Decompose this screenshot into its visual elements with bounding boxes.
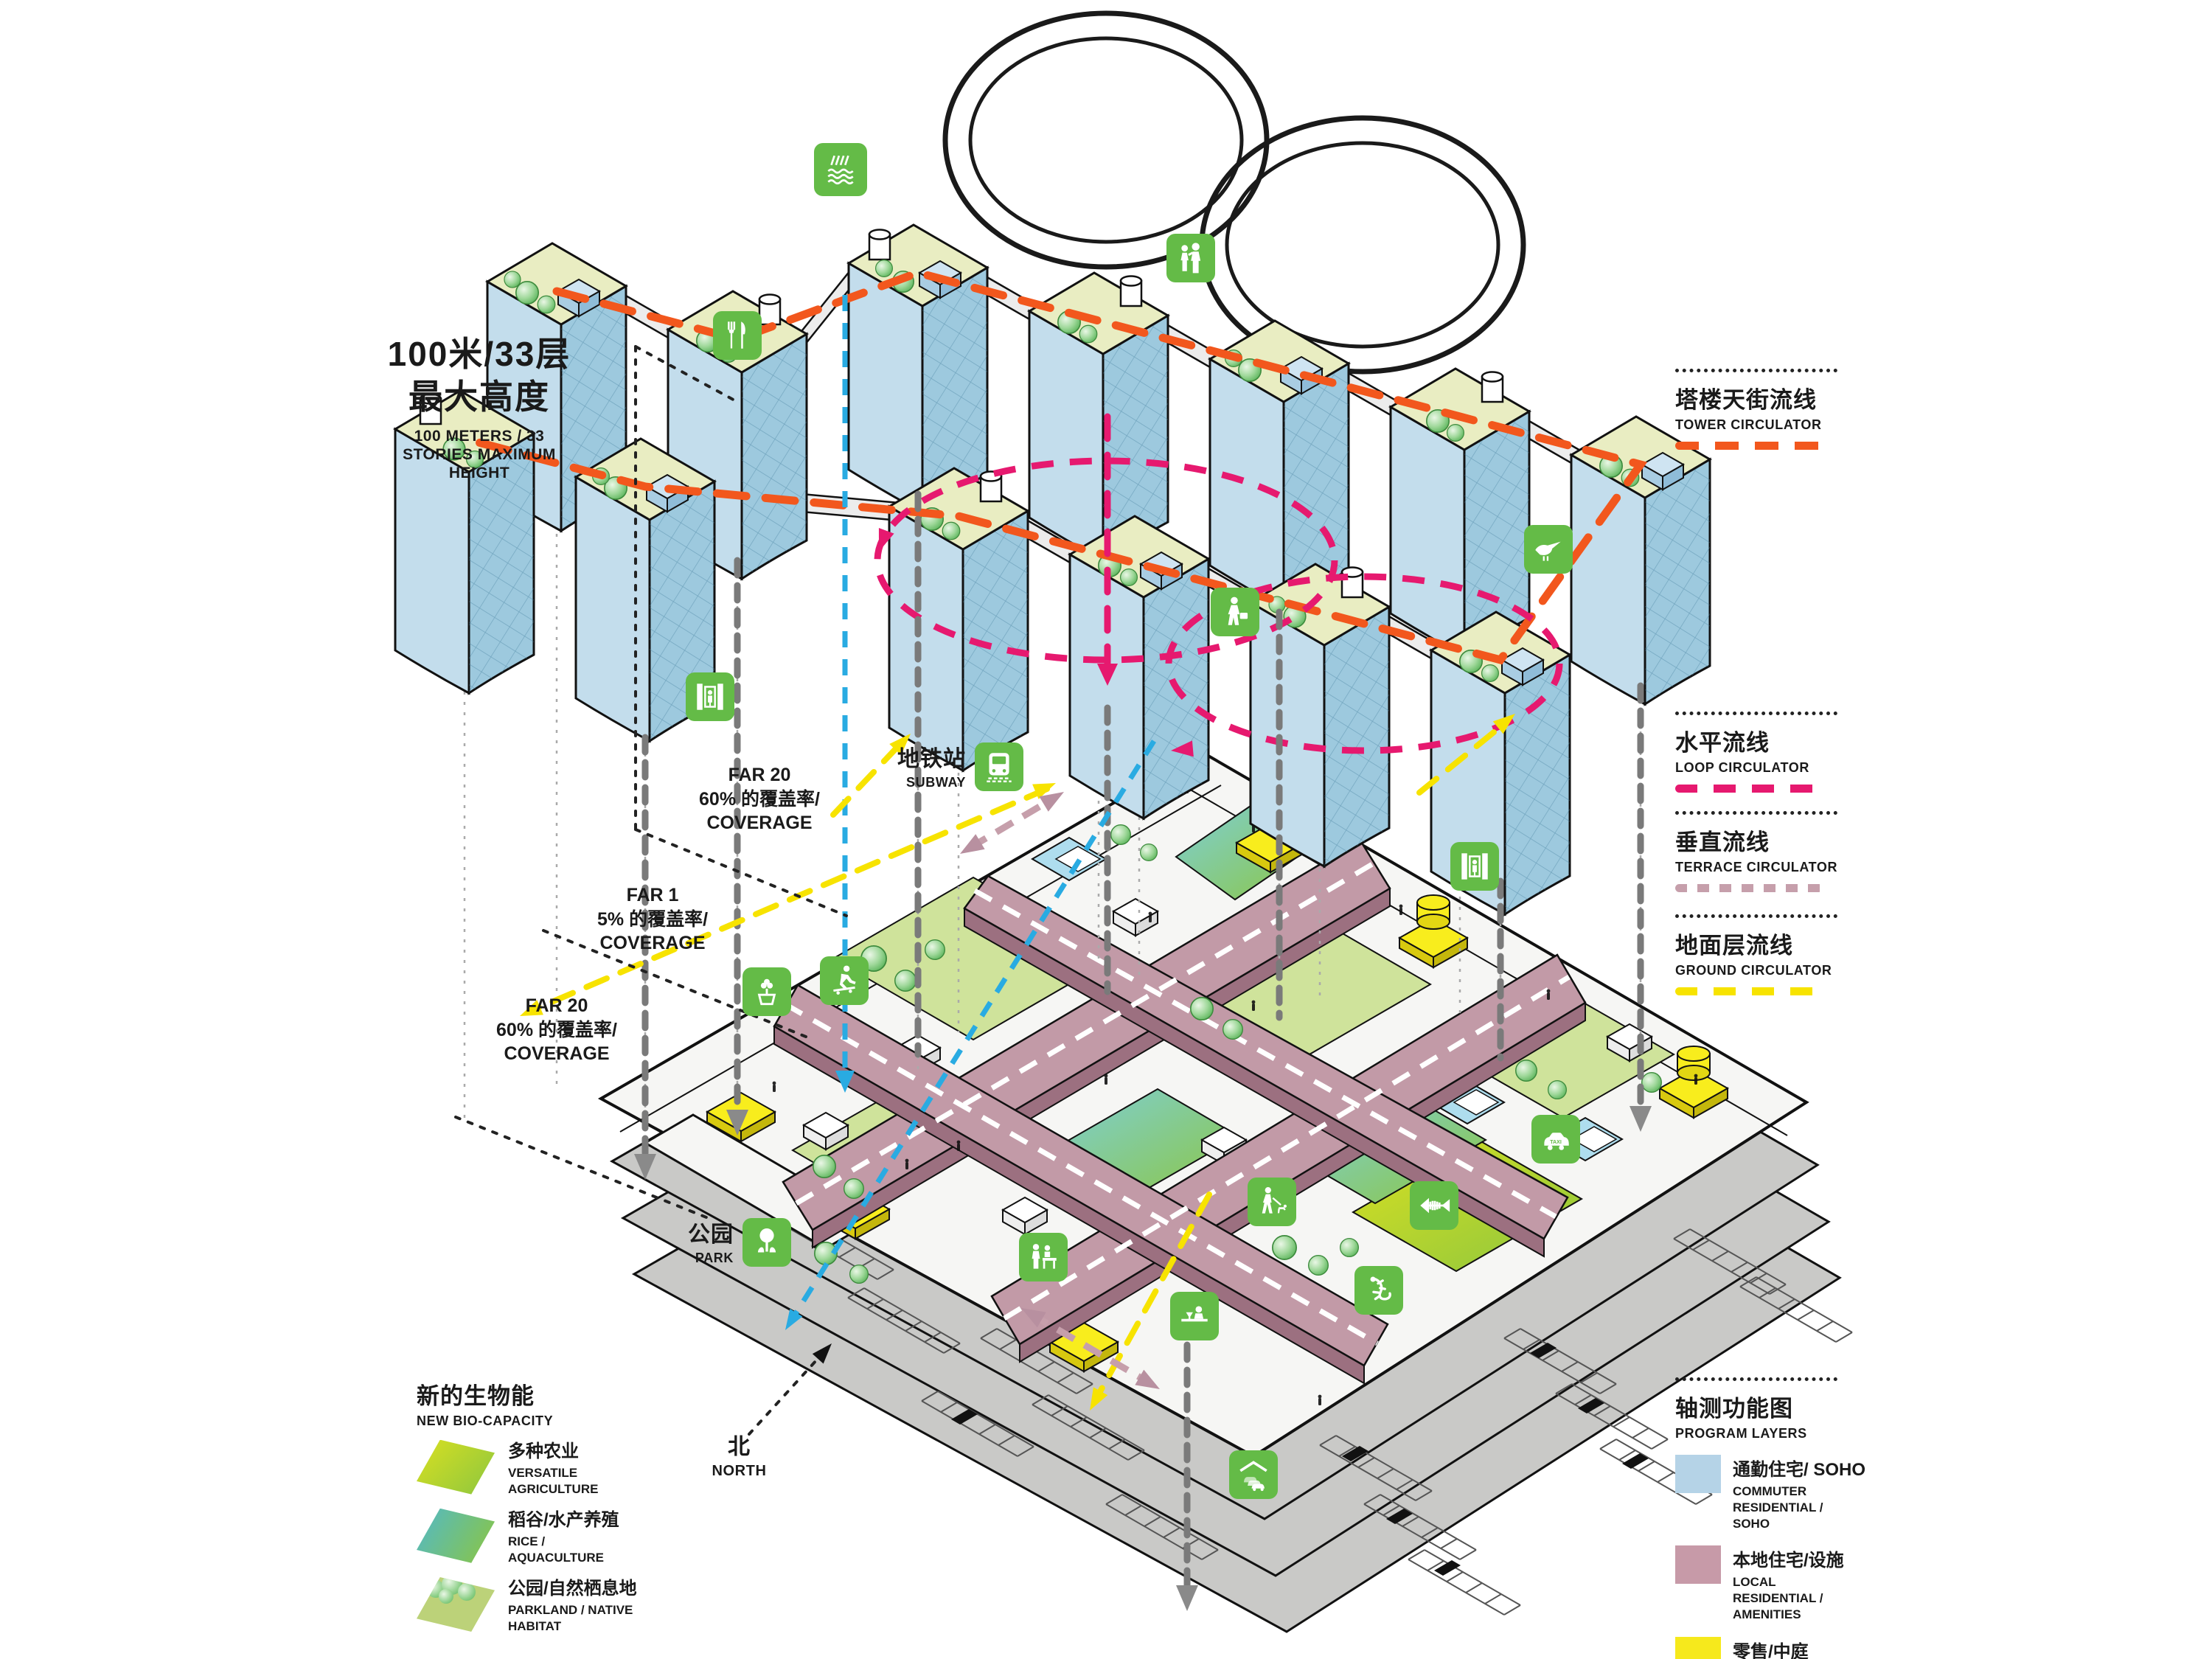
legend-terrace-circulator: 垂直流线 TERRACE CIRCULATOR xyxy=(1675,811,1955,892)
far-note-mid: FAR 1 5% 的覆盖率/ COVERAGE xyxy=(557,883,748,956)
agriculture-swatch xyxy=(417,1440,495,1495)
park-icon xyxy=(742,1218,791,1267)
legend-leader-dots xyxy=(1675,1377,1837,1381)
dog-walking-icon xyxy=(1248,1178,1296,1226)
skateboarding-icon xyxy=(820,956,869,1005)
legend-loop-circulator: 水平流线 LOOP CIRCULATOR xyxy=(1675,712,1955,793)
bird-icon xyxy=(1524,525,1573,574)
subway-icon xyxy=(975,742,1023,791)
elevator-icon xyxy=(686,672,734,721)
subway-label: 地铁站 SUBWAY xyxy=(804,747,966,790)
far-note-bottom: FAR 20 60% 的覆盖率/ COVERAGE xyxy=(461,994,653,1066)
legend-tower-circulator: 塔楼天街流线 TOWER CIRCULATOR xyxy=(1675,369,1955,450)
family-icon xyxy=(1166,234,1215,282)
program-item-local: 本地住宅/设施 LOCAL RESIDENTIAL / AMENITIES xyxy=(1675,1545,1955,1623)
legend-leader-dots xyxy=(1675,712,1837,715)
loop-circulator-swatch xyxy=(1675,785,1823,793)
elevator-icon xyxy=(1450,842,1499,891)
retail-swatch xyxy=(1675,1637,1721,1659)
bio-item-agriculture: 多种农业 VERSATILE AGRICULTURE xyxy=(417,1436,726,1498)
lizard-habitat-icon xyxy=(1354,1266,1403,1315)
legend-leader-dots xyxy=(1675,811,1837,815)
max-height-cn-line2: 最大高度 xyxy=(369,376,590,419)
reception-icon xyxy=(1019,1233,1068,1281)
legend-bio-capacity: 新的生物能 NEW BIO-CAPACITY 多种农业 VERSATILE AG… xyxy=(417,1377,726,1635)
axonometric-masterplan-diagram: 100米/33层 最大高度 100 METERS / 33 STORIES MA… xyxy=(0,0,2212,1659)
legend-ground-circulator: 地面层流线 GROUND CIRCULATOR xyxy=(1675,914,1955,995)
max-height-cn-line1: 100米/33层 xyxy=(369,333,590,376)
terrace-circulator-swatch xyxy=(1675,884,1823,892)
irrigation-icon xyxy=(814,143,867,196)
tower-circulator-swatch xyxy=(1675,442,1823,450)
program-item-commuter: 通勤住宅/ SOHO COMMUTER RESIDENTIAL / SOHO xyxy=(1675,1455,1955,1532)
park-label: 公园 PARK xyxy=(649,1222,734,1266)
ground-circulator-swatch xyxy=(1675,987,1823,995)
fish-habitat-icon xyxy=(1410,1181,1458,1230)
bio-item-parkland: 公园/自然栖息地 PARKLAND / NATIVE HABITAT xyxy=(417,1573,726,1635)
dining-icon xyxy=(713,311,762,360)
legend-program-layers: 轴测功能图 PROGRAM LAYERS 通勤住宅/ SOHO COMMUTER… xyxy=(1675,1377,1955,1659)
covered-parking-icon xyxy=(1229,1450,1278,1499)
legend-leader-dots xyxy=(1675,369,1837,372)
tree-planting-icon xyxy=(742,967,791,1016)
bartender-icon xyxy=(1170,1292,1219,1340)
max-height-note: 100米/33层 最大高度 100 METERS / 33 STORIES MA… xyxy=(369,333,590,483)
rice-swatch xyxy=(417,1509,495,1563)
commuter-swatch xyxy=(1675,1455,1721,1493)
commuter-icon xyxy=(1211,588,1259,636)
taxi-icon-text: TAXI xyxy=(1550,1139,1562,1145)
program-item-retail: 零售/中庭 RETAIL / CONCOURSE xyxy=(1675,1637,1955,1659)
max-height-en: 100 METERS / 33 STORIES MAXIMUM HEIGHT xyxy=(391,427,568,483)
parkland-swatch xyxy=(417,1577,495,1632)
legend-leader-dots xyxy=(1675,914,1837,918)
bio-item-rice: 稻谷/水产养殖 RICE / AQUACULTURE xyxy=(417,1505,726,1566)
local-swatch xyxy=(1675,1545,1721,1584)
taxi-icon: TAXI xyxy=(1531,1115,1580,1164)
